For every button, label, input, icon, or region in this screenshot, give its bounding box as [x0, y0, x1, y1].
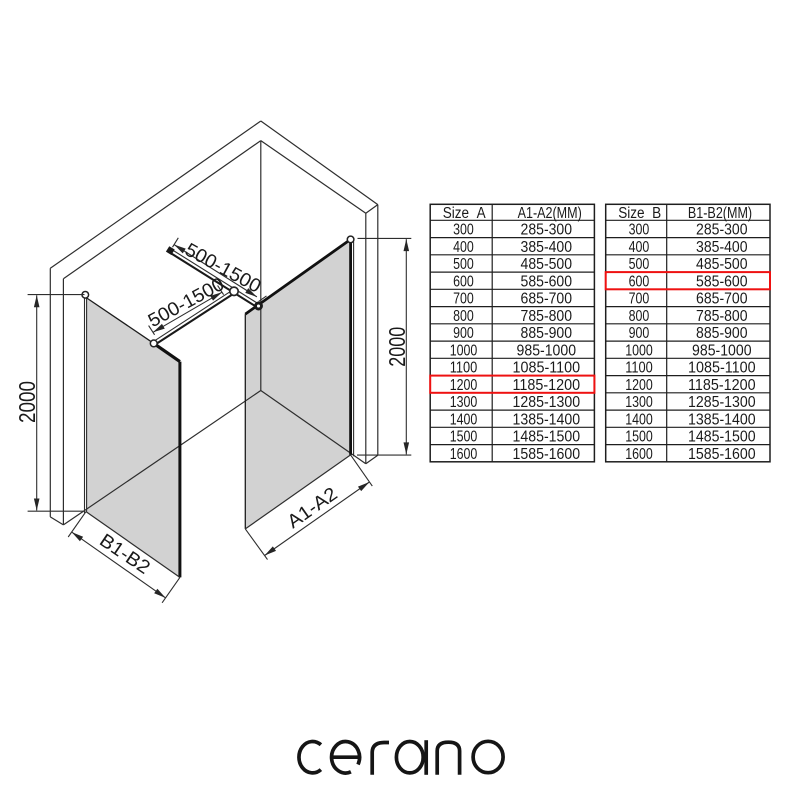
- svg-text:1000: 1000: [625, 342, 653, 359]
- svg-text:1085-1100: 1085-1100: [513, 360, 581, 377]
- svg-text:485-500: 485-500: [521, 256, 573, 273]
- svg-text:585-600: 585-600: [521, 273, 573, 290]
- svg-text:1400: 1400: [625, 411, 653, 428]
- svg-text:1400: 1400: [450, 411, 478, 428]
- svg-text:1600: 1600: [625, 446, 653, 463]
- svg-text:1500: 1500: [450, 429, 478, 446]
- svg-text:1100: 1100: [625, 360, 653, 377]
- svg-text:500: 500: [453, 256, 474, 273]
- svg-text:785-800: 785-800: [696, 308, 748, 325]
- svg-text:1385-1400: 1385-1400: [688, 411, 756, 428]
- svg-text:700: 700: [629, 291, 650, 308]
- svg-text:400: 400: [453, 239, 474, 256]
- svg-text:985-1000: 985-1000: [692, 342, 752, 359]
- svg-text:285-300: 285-300: [696, 222, 748, 239]
- svg-text:1385-1400: 1385-1400: [513, 411, 581, 428]
- svg-text:Size A: Size A: [443, 205, 487, 222]
- svg-text:1100: 1100: [450, 360, 478, 377]
- svg-text:1085-1100: 1085-1100: [688, 360, 756, 377]
- svg-text:885-900: 885-900: [521, 325, 573, 342]
- svg-text:400: 400: [629, 239, 650, 256]
- svg-text:600: 600: [629, 273, 650, 290]
- svg-text:2000: 2000: [14, 381, 40, 423]
- svg-text:B1-B2(MM): B1-B2(MM): [688, 205, 752, 222]
- svg-text:1485-1500: 1485-1500: [513, 429, 581, 446]
- svg-text:600: 600: [453, 273, 474, 290]
- svg-text:700: 700: [453, 291, 474, 308]
- svg-text:1200: 1200: [625, 377, 653, 394]
- svg-text:685-700: 685-700: [696, 291, 748, 308]
- svg-text:1600: 1600: [450, 446, 478, 463]
- svg-text:2000: 2000: [384, 327, 410, 367]
- svg-text:385-400: 385-400: [696, 239, 748, 256]
- svg-text:1185-1200: 1185-1200: [688, 377, 756, 394]
- svg-text:1585-1600: 1585-1600: [688, 446, 756, 463]
- svg-text:A1-A2(MM): A1-A2(MM): [518, 205, 582, 222]
- svg-text:785-800: 785-800: [521, 308, 573, 325]
- svg-text:300: 300: [453, 222, 474, 239]
- svg-text:1300: 1300: [450, 394, 478, 411]
- svg-text:585-600: 585-600: [696, 273, 748, 290]
- svg-text:1200: 1200: [450, 377, 478, 394]
- svg-text:385-400: 385-400: [521, 239, 573, 256]
- svg-text:1500: 1500: [625, 429, 653, 446]
- svg-text:1000: 1000: [450, 342, 478, 359]
- svg-text:Size B: Size B: [618, 205, 661, 222]
- svg-text:500: 500: [629, 256, 650, 273]
- svg-text:285-300: 285-300: [521, 222, 573, 239]
- svg-text:985-1000: 985-1000: [517, 342, 577, 359]
- svg-text:485-500: 485-500: [696, 256, 748, 273]
- svg-text:885-900: 885-900: [696, 325, 748, 342]
- svg-text:1585-1600: 1585-1600: [513, 446, 581, 463]
- svg-text:300: 300: [629, 222, 650, 239]
- svg-text:1300: 1300: [625, 394, 653, 411]
- svg-text:685-700: 685-700: [521, 291, 573, 308]
- svg-text:1285-1300: 1285-1300: [688, 394, 756, 411]
- svg-text:1285-1300: 1285-1300: [513, 394, 581, 411]
- svg-text:900: 900: [453, 325, 474, 342]
- svg-text:800: 800: [453, 308, 474, 325]
- svg-text:1185-1200: 1185-1200: [513, 377, 581, 394]
- svg-text:1485-1500: 1485-1500: [688, 429, 756, 446]
- svg-text:900: 900: [629, 325, 650, 342]
- svg-text:800: 800: [629, 308, 650, 325]
